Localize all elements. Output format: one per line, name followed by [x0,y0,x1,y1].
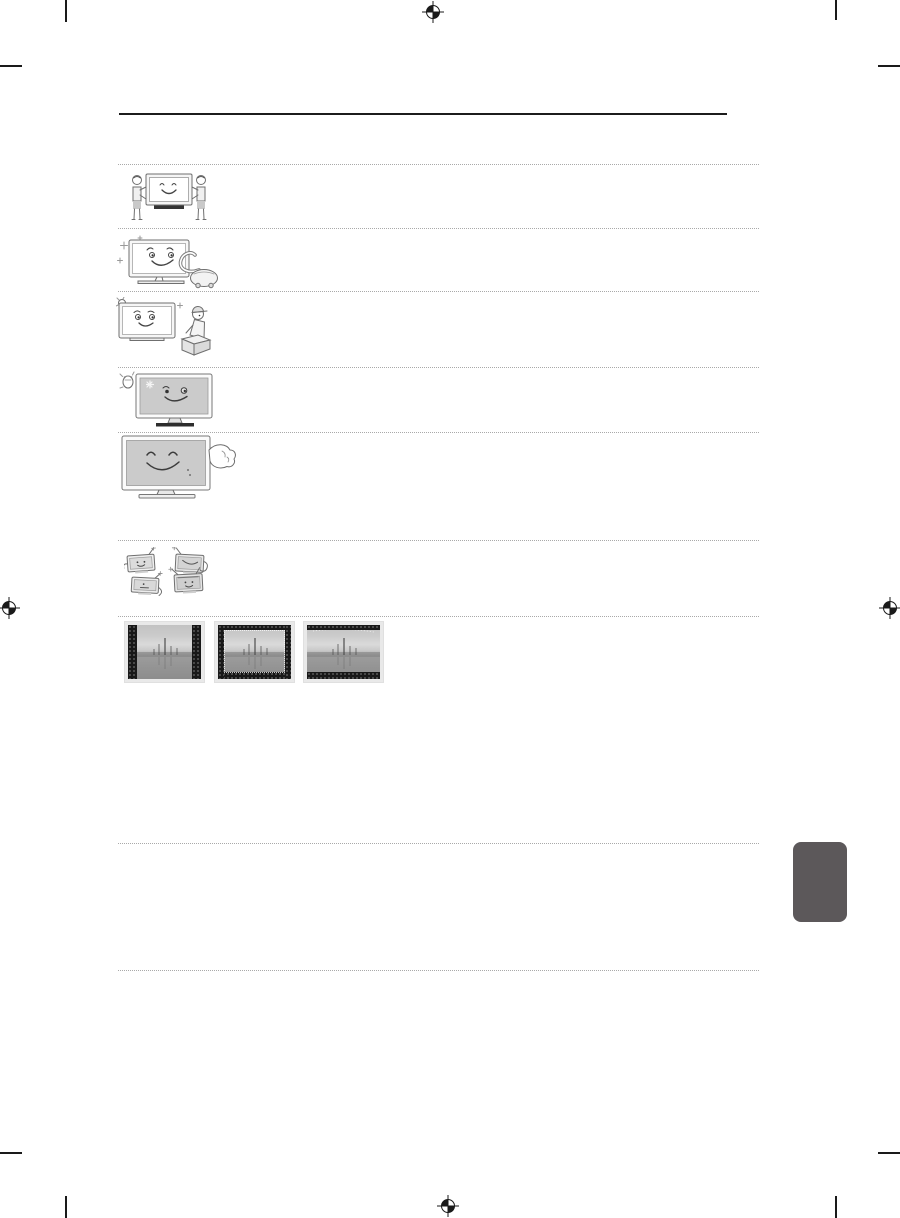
screen-example-pillarbox [124,621,205,683]
winking-tv-icon [119,371,225,429]
dotted-separator [118,616,759,617]
screen-example-letterbox [303,621,384,683]
carrying-tv-icon [124,169,214,227]
registration-mark-icon [879,597,900,619]
tv-technician-icon [116,297,224,361]
crop-mark-top-right-horizontal [878,65,900,67]
crop-mark-top-left-vertical [65,0,67,22]
dotted-separator [118,540,759,541]
black-bar-bottom [218,672,291,679]
crop-mark-top-left-horizontal [0,65,22,67]
tv-cleaning-icon [116,233,222,291]
dotted-separator [118,367,759,368]
dotted-separator [118,970,759,971]
black-bar-bottom [307,672,380,679]
dotted-separator [118,432,759,433]
black-bar-top [218,625,291,630]
landscape-photo [307,625,380,679]
crop-mark-top-right-vertical [835,0,837,20]
black-bar-top [307,625,380,630]
landscape-photo [218,625,291,679]
black-bar-left [218,625,224,679]
registration-mark-icon [422,1,444,23]
section-title-rule [119,113,727,115]
dotted-separator [118,291,759,292]
chapter-side-tab [793,842,847,922]
landscape-photo [128,625,201,679]
black-bar-right [285,625,291,679]
smiling-tv-hand-icon [121,435,243,499]
black-bar-left [128,625,137,679]
black-bar-right [192,625,201,679]
dotted-separator [118,164,759,165]
crop-mark-bottom-left-horizontal [0,1152,22,1154]
manual-page [0,0,900,1218]
dotted-separator [118,843,759,844]
four-tvs-icon [124,547,218,597]
registration-mark-icon [437,1195,459,1217]
crop-mark-bottom-right-horizontal [878,1152,900,1154]
crop-mark-bottom-left-vertical [65,1196,67,1218]
dotted-separator [118,228,759,229]
crop-mark-bottom-right-vertical [835,1196,837,1218]
registration-mark-icon [0,597,20,619]
screen-example-windowbox [214,621,295,683]
